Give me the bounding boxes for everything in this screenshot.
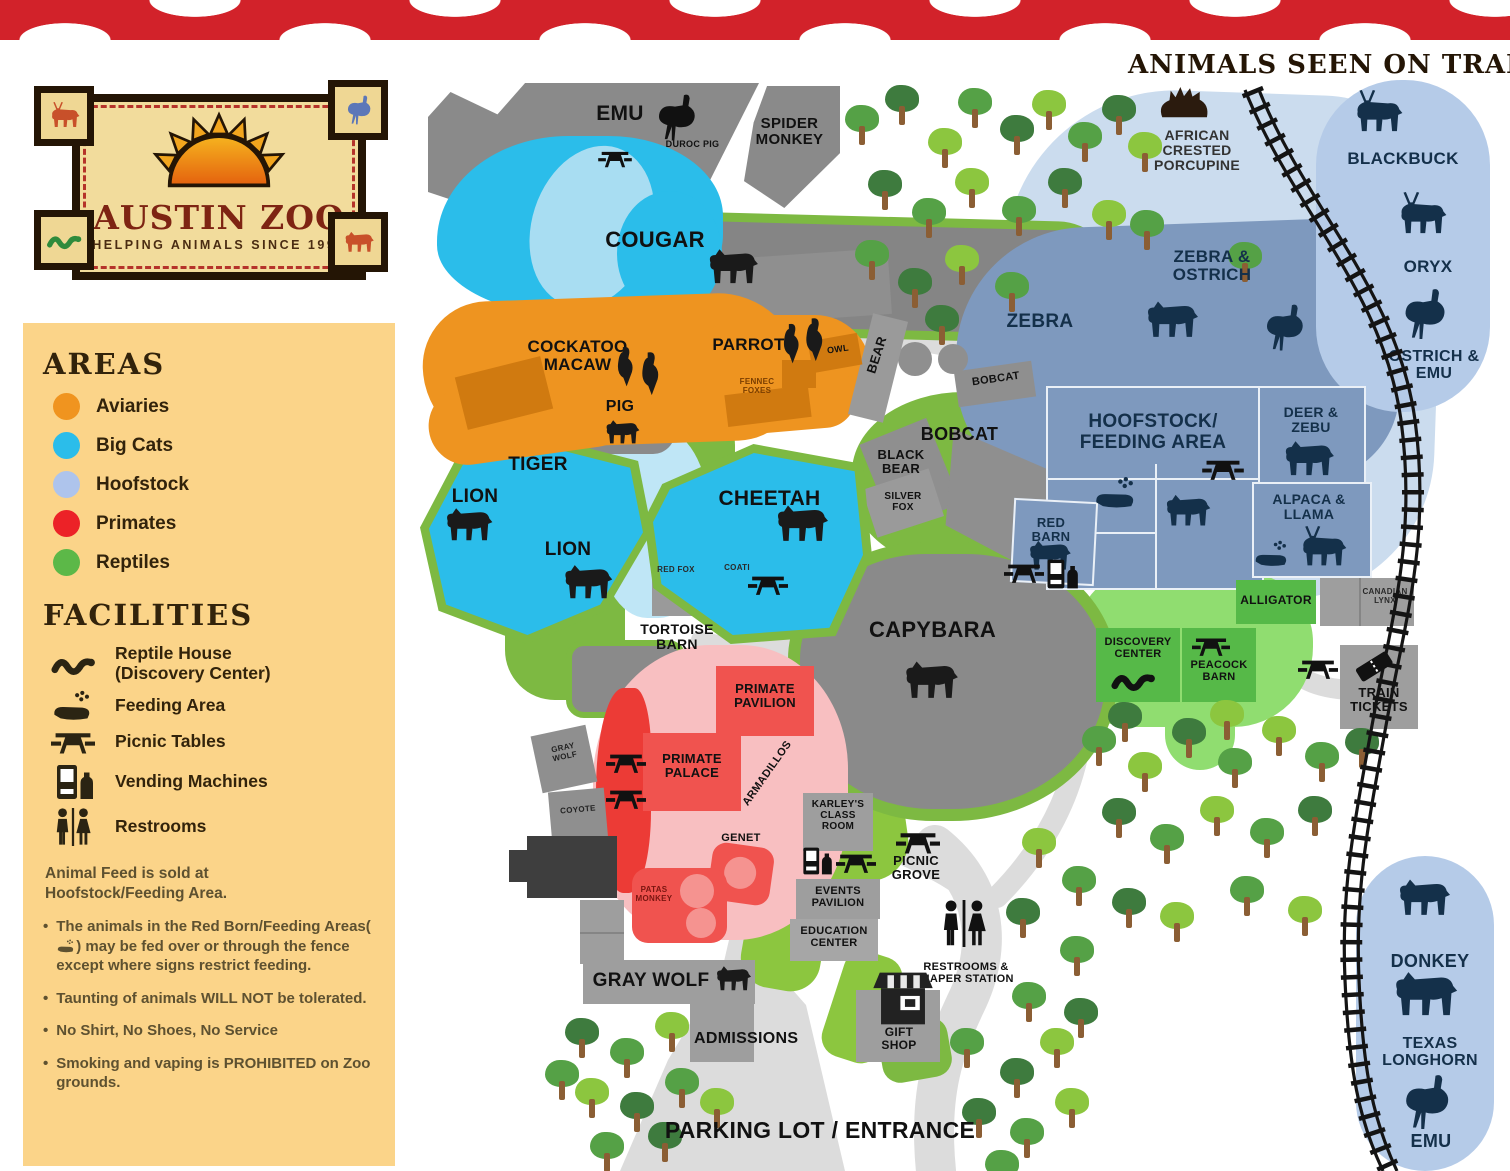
tree-icon (1230, 876, 1264, 918)
tree-icon (1262, 716, 1296, 758)
llama-icon (1294, 526, 1350, 570)
tree-icon (545, 1060, 579, 1102)
ostrich-icon (1260, 302, 1306, 353)
oryx-icon (1392, 192, 1450, 238)
zone-label-black-bear: BLACK BEAR (870, 448, 932, 476)
zone-label-red-fox: RED FOX (656, 566, 696, 575)
zebra-icon (1138, 298, 1202, 341)
zone-label-gift-shop: GIFT SHOP (868, 1026, 930, 1052)
wolf-icon (710, 964, 754, 993)
emu-icon (652, 92, 698, 143)
tree-icon (1000, 1058, 1034, 1100)
tree-icon (958, 88, 992, 130)
picnic-table-icon (748, 572, 788, 597)
lion-icon (556, 562, 616, 602)
zone-label-texas-longhorn: TEXAS LONGHORN (1376, 1035, 1484, 1070)
tree-icon (1000, 115, 1034, 157)
tree-icon (1160, 902, 1194, 944)
picnic-table-icon (606, 786, 646, 811)
primates-color-dot (53, 510, 80, 537)
tree-icon (1200, 796, 1234, 838)
picnic-table-icon (896, 828, 940, 856)
vending-machine-icon (1044, 558, 1078, 590)
tree-icon (855, 240, 889, 282)
tree-icon (565, 1018, 599, 1060)
zone-label-karleys-class-room: KARLEY'S CLASS ROOM (806, 800, 870, 832)
tree-icon (985, 1150, 1019, 1171)
tree-icon (925, 305, 959, 347)
tree-icon (1345, 728, 1379, 770)
zebu-icon (1276, 438, 1338, 479)
tree-icon (1060, 936, 1094, 978)
tree-icon (1108, 702, 1142, 744)
logo-tile-monkey (328, 212, 388, 272)
austin-zoo-map: AUSTIN ZOO HELPING ANIMALS SINCE 1990 AN… (0, 0, 1510, 1171)
sun-icon (144, 108, 294, 192)
rule-taunting: •Taunting of animals WILL NOT be tolerat… (43, 989, 379, 1009)
zone-label-blackbuck: BLACKBUCK (1337, 150, 1469, 168)
tree-icon (1068, 122, 1102, 164)
tree-icon (1012, 982, 1046, 1024)
zone-label-pig: PIG (596, 398, 644, 415)
patas-monkey-enclosure (632, 868, 727, 943)
zone-label-oryx: ORYX (1398, 258, 1458, 276)
animal-feed-note: Animal Feed is sold at Hoofstock/Feeding… (45, 864, 345, 904)
emu-icon (1398, 286, 1448, 342)
zone-label-fennec-foxes: FENNEC FOXES (726, 378, 788, 395)
restrooms-icon (52, 808, 94, 846)
tree-icon (665, 1068, 699, 1110)
logo-plate: AUSTIN ZOO HELPING ANIMALS SINCE 1990 (72, 94, 366, 280)
vending-machines-label: Vending Machines (115, 772, 345, 792)
zone-label-alligator: ALLIGATOR (1240, 594, 1312, 607)
tree-icon (885, 85, 919, 127)
legend-panel: AREAS Aviaries Big Cats Hoofstock Primat… (23, 323, 395, 1166)
tree-icon (1172, 718, 1206, 760)
sheep-icon (1158, 492, 1214, 529)
zone-label-picnic-grove: PICNIC GROVE (880, 854, 952, 882)
tree-icon (995, 272, 1029, 314)
tree-icon (898, 268, 932, 310)
zone-label-capybara: CAPYBARA (860, 618, 1005, 642)
rule-feeding-text-2: ) may be fed over or through the fence e… (56, 938, 349, 975)
train-ticket-icon (1352, 650, 1396, 682)
feeding-icon (1092, 476, 1140, 509)
logo-subtitle: HELPING ANIMALS SINCE 1990 (80, 238, 358, 252)
tree-icon (655, 1012, 689, 1054)
dark-building (527, 836, 617, 898)
tree-icon (1150, 824, 1184, 866)
zone-label-zebra: ZEBRA (995, 312, 1085, 333)
zone-label-primate-pavilion: PRIMATE PAVILION (722, 682, 808, 710)
reptiles-label: Reptiles (96, 552, 170, 574)
tree-icon (1102, 95, 1136, 137)
picnic-table-icon (606, 750, 646, 775)
picnic-tables-label: Picnic Tables (115, 732, 345, 752)
legend-facility-picnic-tables: Picnic Tables (45, 728, 375, 756)
tree-icon (1128, 752, 1162, 794)
feeding-icon (1252, 540, 1292, 567)
zone-label-tiger: TIGER (498, 455, 578, 476)
zone-label-events-pavilion: EVENTS PAVILION (800, 886, 876, 910)
parrot-icon (800, 316, 828, 363)
tree-icon (912, 198, 946, 240)
deer-icon (46, 102, 82, 130)
tree-icon (845, 105, 879, 147)
picnic-table-icon (51, 728, 95, 756)
tree-icon (928, 128, 962, 170)
gray-circle (898, 342, 932, 376)
tree-icon (1250, 818, 1284, 860)
zone-label-emu: EMU (585, 103, 655, 126)
cougar-icon (700, 246, 762, 287)
rule-feeding-text-1: The animals in the Red Born/Feeding Area… (56, 918, 371, 935)
zone-label-canadian-lynx: CANADIAN LYNX (1360, 588, 1410, 605)
zone-label-education-center: EDUCATION CENTER (794, 926, 874, 950)
tree-icon (1112, 888, 1146, 930)
tree-icon (1032, 90, 1066, 132)
logo-title: AUSTIN ZOO (80, 198, 358, 237)
rule-no-shirt: •No Shirt, No Shoes, No Service (43, 1021, 379, 1041)
zone-label-emu-train: EMU (1396, 1132, 1466, 1151)
zone-label-african-crested-porcupine: AFRICAN CRESTED PORCUPINE (1133, 128, 1261, 173)
tree-icon (575, 1078, 609, 1120)
areas-heading: AREAS (43, 347, 375, 381)
picnic-table-icon (1298, 656, 1338, 681)
feeding-icon (56, 939, 76, 953)
legend-area-aviaries: Aviaries (53, 393, 375, 420)
monkey-icon (340, 229, 376, 255)
zone-label-spider-monkey: SPIDER MONKEY (742, 116, 837, 148)
emu-icon (1398, 1072, 1452, 1132)
zone-label-admissions: ADMISSIONS (694, 1030, 819, 1047)
reptiles-color-dot (53, 549, 80, 576)
zone-label-cougar: COUGAR (600, 228, 710, 252)
tree-icon (1210, 700, 1244, 742)
zone-label-peacock-barn: PEACOCK BARN (1187, 660, 1251, 684)
lion-icon (438, 505, 496, 544)
zone-label-train-tickets: TRAIN TICKETS (1346, 686, 1412, 714)
bird-icon (343, 94, 373, 126)
porcupine-icon (1155, 82, 1213, 121)
tree-icon (1006, 898, 1040, 940)
legend-area-hoofstock: Hoofstock (53, 471, 375, 498)
zone-label-deer-zebu: DEER & ZEBU (1272, 405, 1350, 435)
tree-icon (1002, 196, 1036, 238)
tree-icon (1102, 798, 1136, 840)
vending-machine-icon (53, 763, 93, 801)
zone-label-zebra-ostrich: ZEBRA & OSTRICH (1138, 248, 1286, 285)
rule-taunting-text: Taunting of animals WILL NOT be tolerate… (56, 989, 366, 1009)
zone-label-primate-palace: PRIMATE PALACE (650, 752, 734, 780)
rule-no-shirt-text: No Shirt, No Shoes, No Service (56, 1021, 278, 1041)
logo-tile-deer (34, 86, 94, 146)
blackbuck-icon (1348, 90, 1406, 136)
restrooms-label: Restrooms (115, 817, 345, 837)
zone-label-patas-monkey: PATAS MONKEY (630, 886, 678, 903)
pig-icon (600, 418, 642, 446)
hoofstock-label: Hoofstock (96, 474, 189, 496)
tree-icon (1062, 866, 1096, 908)
picnic-table-icon (1192, 634, 1230, 658)
zone-label-hoofstock-feeding: HOOFSTOCK/ FEEDING AREA (1062, 412, 1244, 453)
legend-facility-feeding-area: Feeding Area (45, 690, 375, 721)
feeding-area-label: Feeding Area (115, 696, 345, 716)
tree-icon (1048, 168, 1082, 210)
feeding-icon (50, 690, 96, 721)
snake-icon (46, 229, 82, 251)
reptile-house-label: Reptile House (Discovery Center) (115, 644, 315, 683)
tree-icon (1218, 748, 1252, 790)
primates-label: Primates (96, 513, 176, 535)
tree-icon (945, 245, 979, 287)
logo-tile-bird (328, 80, 388, 140)
zone-label-lion-lower: LION (528, 540, 608, 561)
legend-facility-vending: Vending Machines (45, 763, 375, 801)
zone-label-alpaca-llama: ALPACA & LLAMA (1260, 492, 1358, 522)
tree-icon (1092, 200, 1126, 242)
zone-label-gray-wolf: GRAY WOLF (592, 971, 710, 992)
picnic-table-icon (1202, 456, 1244, 482)
big-cats-color-dot (53, 432, 80, 459)
zone-label-tortoise-barn: TORTOISE BARN (628, 622, 726, 652)
legend-area-reptiles: Reptiles (53, 549, 375, 576)
zone-label-discovery-center: DISCOVERY CENTER (1102, 637, 1174, 661)
aviaries-color-dot (53, 393, 80, 420)
legend-area-primates: Primates (53, 510, 375, 537)
picnic-table-icon (836, 850, 876, 875)
snake-icon (50, 650, 96, 677)
parking-lot-entrance-label: PARKING LOT / ENTRANCE (620, 1118, 1020, 1143)
snake-icon (1110, 666, 1156, 693)
tree-icon (950, 1028, 984, 1070)
zone-label-bobcat: BOBCAT (912, 425, 1007, 444)
picnic-table-icon (1004, 560, 1044, 585)
zone-cheetah (644, 444, 872, 644)
macaw-icon (612, 345, 638, 388)
tree-icon (1288, 896, 1322, 938)
aviaries-label: Aviaries (96, 396, 169, 418)
tree-icon (1022, 828, 1056, 870)
capybara-icon (896, 658, 962, 702)
rule-feeding: • The animals in the Red Born/Feeding Ar… (43, 917, 379, 976)
legend-facility-restrooms: Restrooms (45, 808, 375, 846)
zone-label-silver-fox: SILVER FOX (878, 492, 928, 514)
logo-tile-snake (34, 210, 94, 270)
zone-label-ostrich-emu: OSTRICH & EMU (1388, 348, 1480, 383)
tree-icon (1040, 1028, 1074, 1070)
zone-label-genet: GENET (712, 833, 770, 845)
tree-icon (1055, 1088, 1089, 1130)
cockatoo-icon (636, 350, 664, 397)
animals-seen-on-train-heading: ANIMALS SEEN ON TRAIN: (1128, 50, 1510, 80)
legend-area-big-cats: Big Cats (53, 432, 375, 459)
vending-machine-icon (800, 846, 832, 876)
rule-smoking-text: Smoking and vaping is PROHIBITED on Zoo … (56, 1054, 379, 1093)
gift-shop-icon (872, 970, 934, 1027)
hoofstock-color-dot (53, 471, 80, 498)
facilities-heading: FACILITIES (43, 598, 375, 632)
restrooms-icon (938, 900, 990, 947)
legend-facility-reptile-house: Reptile House (Discovery Center) (45, 644, 375, 683)
cheetah-icon (768, 502, 832, 545)
tree-icon (610, 1038, 644, 1080)
gray-building (580, 900, 624, 964)
tree-icon (1298, 796, 1332, 838)
big-cats-label: Big Cats (96, 435, 173, 457)
tree-icon (955, 168, 989, 210)
rule-smoking: •Smoking and vaping is PROHIBITED on Zoo… (43, 1054, 379, 1093)
austin-zoo-logo: AUSTIN ZOO HELPING ANIMALS SINCE 1990 (30, 58, 394, 292)
donkey-icon (1390, 876, 1454, 919)
tree-icon (590, 1132, 624, 1171)
tree-icon (1130, 210, 1164, 252)
dark-building-wing (509, 850, 533, 882)
longhorn-icon (1384, 968, 1462, 1020)
picnic-table-icon (598, 148, 632, 169)
tree-icon (868, 170, 902, 212)
tree-icon (1305, 742, 1339, 784)
